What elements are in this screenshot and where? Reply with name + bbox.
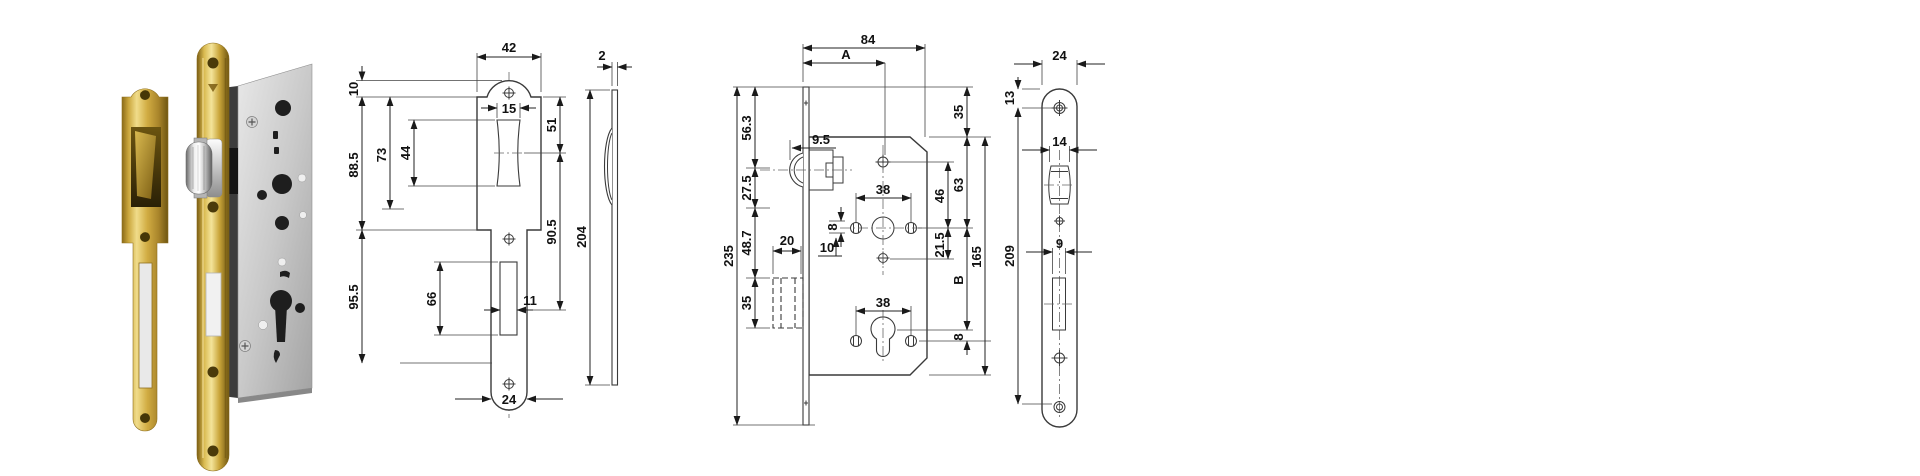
dim-strike-top-width: 42 <box>502 40 516 55</box>
dim-backset: A <box>841 47 851 62</box>
strike-side-outline <box>605 90 618 385</box>
product-panel: 42 10 15 88.5 73 44 51 90.5 95.5 66 11 2… <box>0 0 1920 476</box>
dim-forend-screw-centres: 209 <box>1002 245 1017 267</box>
dim-screw-span-upper: 38 <box>876 182 890 197</box>
dim-cylinder-offset: 8 <box>951 333 966 340</box>
dim-strike-cutout-height: 44 <box>398 145 413 160</box>
dim-strike-bottom-width: 24 <box>502 392 517 407</box>
dim-strike-90-5: 90.5 <box>544 219 559 244</box>
dim-strike-thickness: 2 <box>598 48 605 63</box>
dim-deadbolt-throw: 20 <box>780 233 794 248</box>
dim-strike-tab-height: 10 <box>346 82 361 96</box>
dim-strike-height: 204 <box>575 225 589 247</box>
dim-hole-pitch: 46 <box>932 189 947 203</box>
dim-forend-top-to-screw: 13 <box>1002 91 1017 105</box>
dim-forend-width: 24 <box>1052 48 1067 63</box>
lock-case-outline <box>760 87 927 425</box>
dim-forend-latch-width: 14 <box>1052 134 1067 149</box>
product-photo <box>60 0 320 476</box>
strike-plate-front-drawing: 42 10 15 88.5 73 44 51 90.5 95.5 66 11 2… <box>330 30 575 420</box>
dim-follower-pitch: 48.7 <box>739 230 754 255</box>
dim-strike-slot-width: 11 <box>523 293 537 308</box>
dim-offset-ten: 10 <box>820 240 834 255</box>
lock-case-drawing: 84 A 56.3 27.5 48.7 35 235 9.5 20 10 8 3… <box>700 30 1000 470</box>
forend-front-drawing: 24 13 209 14 9 <box>1000 30 1140 470</box>
dim-strike-upper-height: 88.5 <box>346 152 361 177</box>
dim-screw-span-lower: 38 <box>876 295 890 310</box>
lock-case-photo <box>222 64 312 403</box>
dim-follower-to-hole: 21.5 <box>932 232 947 257</box>
dim-strike-lower-height: 95.5 <box>346 284 361 309</box>
dim-deadbolt-height: 35 <box>739 296 754 310</box>
dim-strike-cutout-width: 15 <box>502 101 516 116</box>
deadbolt-face <box>206 273 221 336</box>
dim-case-height: 165 <box>969 246 984 268</box>
dim-strike-slot-height: 66 <box>424 292 439 306</box>
dim-strike-dustbox-height: 73 <box>374 148 389 162</box>
dim-latch-projection: 9.5 <box>812 132 830 147</box>
lock-forend-photo <box>186 43 229 471</box>
dim-latch-pitch: 27.5 <box>739 175 754 200</box>
dim-forend-to-case-top: 35 <box>951 105 966 119</box>
strike-front-outline <box>477 72 541 418</box>
dim-case-depth: 84 <box>861 32 876 47</box>
dim-forend-height: 235 <box>721 245 736 267</box>
dim-case-top-to-follower: 63 <box>951 178 966 192</box>
strike-plate-photo <box>122 89 168 431</box>
dim-spindle-square: 8 <box>825 223 840 230</box>
roller-latch <box>186 138 222 198</box>
strike-side-dimensions: 2 204 <box>575 48 632 385</box>
strike-bolt-slot <box>139 263 152 388</box>
strike-plate-side-drawing: 2 204 <box>575 30 665 420</box>
dim-centres: B <box>951 275 966 284</box>
dim-strike-51: 51 <box>544 118 559 132</box>
dim-forend-deadbolt-width: 9 <box>1056 236 1063 251</box>
deadbolt-hidden <box>773 278 803 328</box>
dim-top-to-latch: 56.3 <box>739 115 754 140</box>
